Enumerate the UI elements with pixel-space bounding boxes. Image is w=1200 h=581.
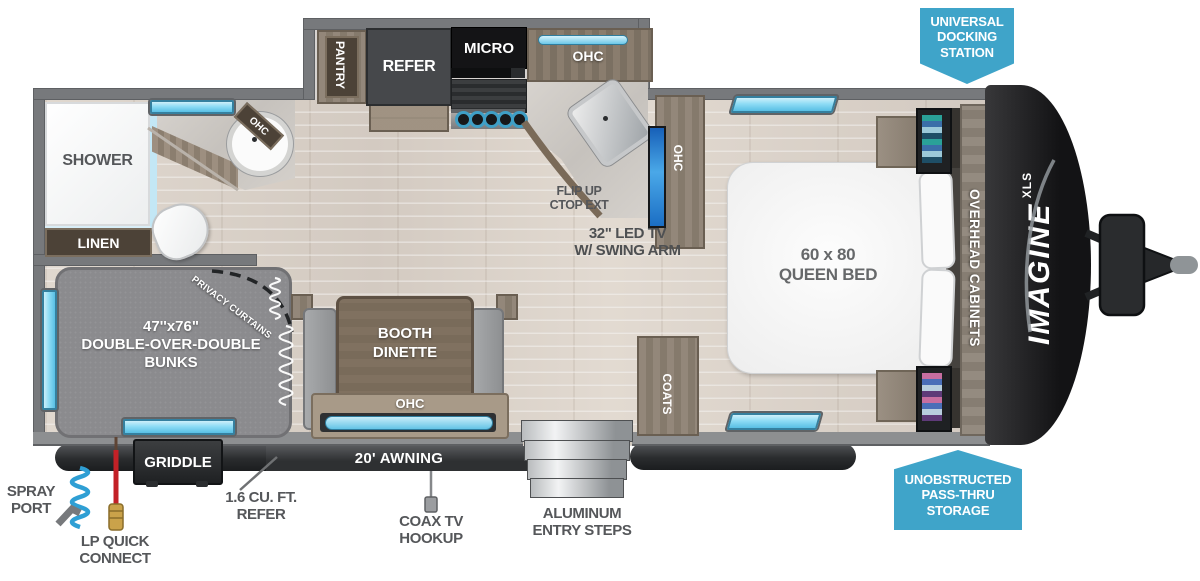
- floorplan: SHOWER LINEN OHC 47''x76" DOUBLE-OVER-DO…: [0, 0, 1200, 581]
- refer-drawers: [369, 102, 449, 132]
- lp-line1: LP QUICK: [50, 534, 180, 551]
- griddle-foot: [146, 481, 158, 487]
- tv-ohc-label-text: OHC: [671, 145, 685, 172]
- propane-tank-cover: [1100, 215, 1144, 315]
- spray-port-line2: PORT: [0, 501, 62, 518]
- dinette-label-line1: BOOTH: [339, 325, 471, 344]
- pantry-label: PANTRY: [331, 25, 349, 105]
- stove: [451, 79, 527, 113]
- slide-wall-left: [303, 18, 315, 100]
- dinette-ohc: OHC: [311, 393, 509, 439]
- hitch: [1086, 215, 1198, 315]
- spray-hose-icon: [58, 468, 88, 527]
- storage-line3: STORAGE: [894, 503, 1022, 518]
- awning: 20' AWNING: [266, 446, 532, 471]
- bed-label-line1: 60 x 80: [758, 245, 898, 265]
- bunks-label-line3: BUNKS: [66, 354, 276, 372]
- refrigerator: REFER: [366, 28, 452, 106]
- pillow: [918, 268, 955, 367]
- kitchen-ohc-label: OHC: [527, 48, 649, 64]
- window: [42, 290, 57, 410]
- storage-line1: UNOBSTRUCTED: [894, 472, 1022, 487]
- flip-ctop-line1: FLIP UP: [540, 184, 618, 198]
- wardrobe-clothes: [922, 373, 942, 421]
- linen-label: LINEN: [78, 235, 120, 251]
- tv-ohc-label: OHC: [670, 128, 686, 188]
- brand-logo: IMAGINE XLS: [1020, 105, 1090, 345]
- overhead-cabinets-label-text: OVERHEAD CABINETS: [968, 189, 983, 347]
- outside-refer-line1: 1.6 CU. FT.: [196, 490, 326, 507]
- kitchen-ohc-window-strip: [538, 35, 628, 45]
- dinette-label-line2: DINETTE: [339, 344, 471, 363]
- bed-label: 60 x 80 QUEEN BED: [758, 245, 898, 286]
- window: [731, 96, 838, 113]
- coax-line1: COAX TV: [366, 514, 496, 531]
- flip-ctop-label: FLIP UP CTOP EXT: [540, 184, 618, 212]
- griddle-foot: [196, 481, 208, 487]
- shower-label: SHOWER: [45, 152, 150, 170]
- griddle-label: GRIDDLE: [144, 454, 212, 471]
- microwave: MICRO: [451, 27, 527, 69]
- bunks-label-line2: DOUBLE-OVER-DOUBLE: [66, 336, 276, 354]
- coax-label: COAX TV HOOKUP: [366, 514, 496, 548]
- outside-refer-line2: REFER: [196, 507, 326, 524]
- range-vent: [451, 68, 525, 78]
- wardrobe: [916, 366, 952, 432]
- griddle: GRIDDLE: [133, 439, 223, 485]
- pantry-label-text: PANTRY: [333, 41, 347, 89]
- hitch-coupler-tip: [1170, 256, 1198, 274]
- dinette-table: BOOTH DINETTE: [336, 296, 474, 402]
- entry-steps: [527, 459, 627, 480]
- linen-cabinet: LINEN: [45, 228, 152, 257]
- shower: SHOWER: [45, 102, 157, 230]
- bunks-label: 47''x76" DOUBLE-OVER-DOUBLE BUNKS: [66, 318, 276, 372]
- entry-steps-line1: ALUMINUM: [512, 506, 652, 523]
- tv-label-line1: 32" LED TV: [555, 226, 700, 243]
- entry-steps-label: ALUMINUM ENTRY STEPS: [512, 506, 652, 540]
- coats-label-text: COATS: [660, 373, 674, 414]
- window: [727, 413, 822, 430]
- wall-top-left: [33, 88, 311, 100]
- docking-line3: STATION: [920, 45, 1014, 60]
- docking-line2: DOCKING: [920, 29, 1014, 44]
- brand-name: IMAGINE: [1023, 203, 1056, 345]
- lp-quick-connect-label: LP QUICK CONNECT: [50, 534, 180, 568]
- bed-label-line2: QUEEN BED: [758, 265, 898, 285]
- frame-rail-right: [630, 443, 856, 470]
- dinette-label: BOOTH DINETTE: [339, 325, 471, 363]
- window: [123, 419, 235, 435]
- overhead-cabinets-label: OVERHEAD CABINETS: [966, 138, 984, 398]
- dinette-ohc-window: [325, 416, 493, 430]
- coax-line2: HOOKUP: [366, 531, 496, 548]
- bunk-bed: 47''x76" DOUBLE-OVER-DOUBLE BUNKS: [55, 267, 292, 438]
- entry-steps-line2: ENTRY STEPS: [512, 523, 652, 540]
- storage-line2: PASS-THRU: [894, 487, 1022, 502]
- pillow: [918, 170, 955, 269]
- awning-label: 20' AWNING: [355, 450, 444, 467]
- spray-port-label: SPRAY PORT: [0, 484, 62, 518]
- passthru-storage-badge: UNOBSTRUCTED PASS-THRU STORAGE: [894, 450, 1022, 530]
- outside-refer-label: 1.6 CU. FT. REFER: [196, 490, 326, 524]
- tv-label: 32" LED TV W/ SWING ARM: [555, 226, 700, 260]
- coax-pointer-icon: [425, 471, 437, 512]
- docking-station-badge: UNIVERSAL DOCKING STATION: [920, 8, 1014, 84]
- lp-line2: CONNECT: [50, 551, 180, 568]
- docking-line1: UNIVERSAL: [920, 14, 1014, 29]
- entry-steps: [521, 420, 633, 442]
- entry-steps: [530, 478, 624, 498]
- window: [150, 100, 234, 114]
- coats-label: COATS: [659, 359, 675, 429]
- burner: [511, 111, 528, 128]
- flip-ctop-line2: CTOP EXT: [540, 198, 618, 212]
- wardrobe-clothes: [922, 115, 942, 163]
- refer-label: REFER: [383, 58, 436, 76]
- dinette-ohc-label: OHC: [313, 396, 507, 411]
- brand-series: XLS: [1020, 172, 1034, 198]
- wardrobe: [916, 108, 952, 174]
- spray-port-line1: SPRAY: [0, 484, 62, 501]
- kitchen-sink-drain: [603, 116, 608, 121]
- micro-label: MICRO: [464, 40, 514, 57]
- entry-steps: [524, 440, 630, 461]
- tv-label-line2: W/ SWING ARM: [555, 243, 700, 260]
- tv: [648, 126, 666, 228]
